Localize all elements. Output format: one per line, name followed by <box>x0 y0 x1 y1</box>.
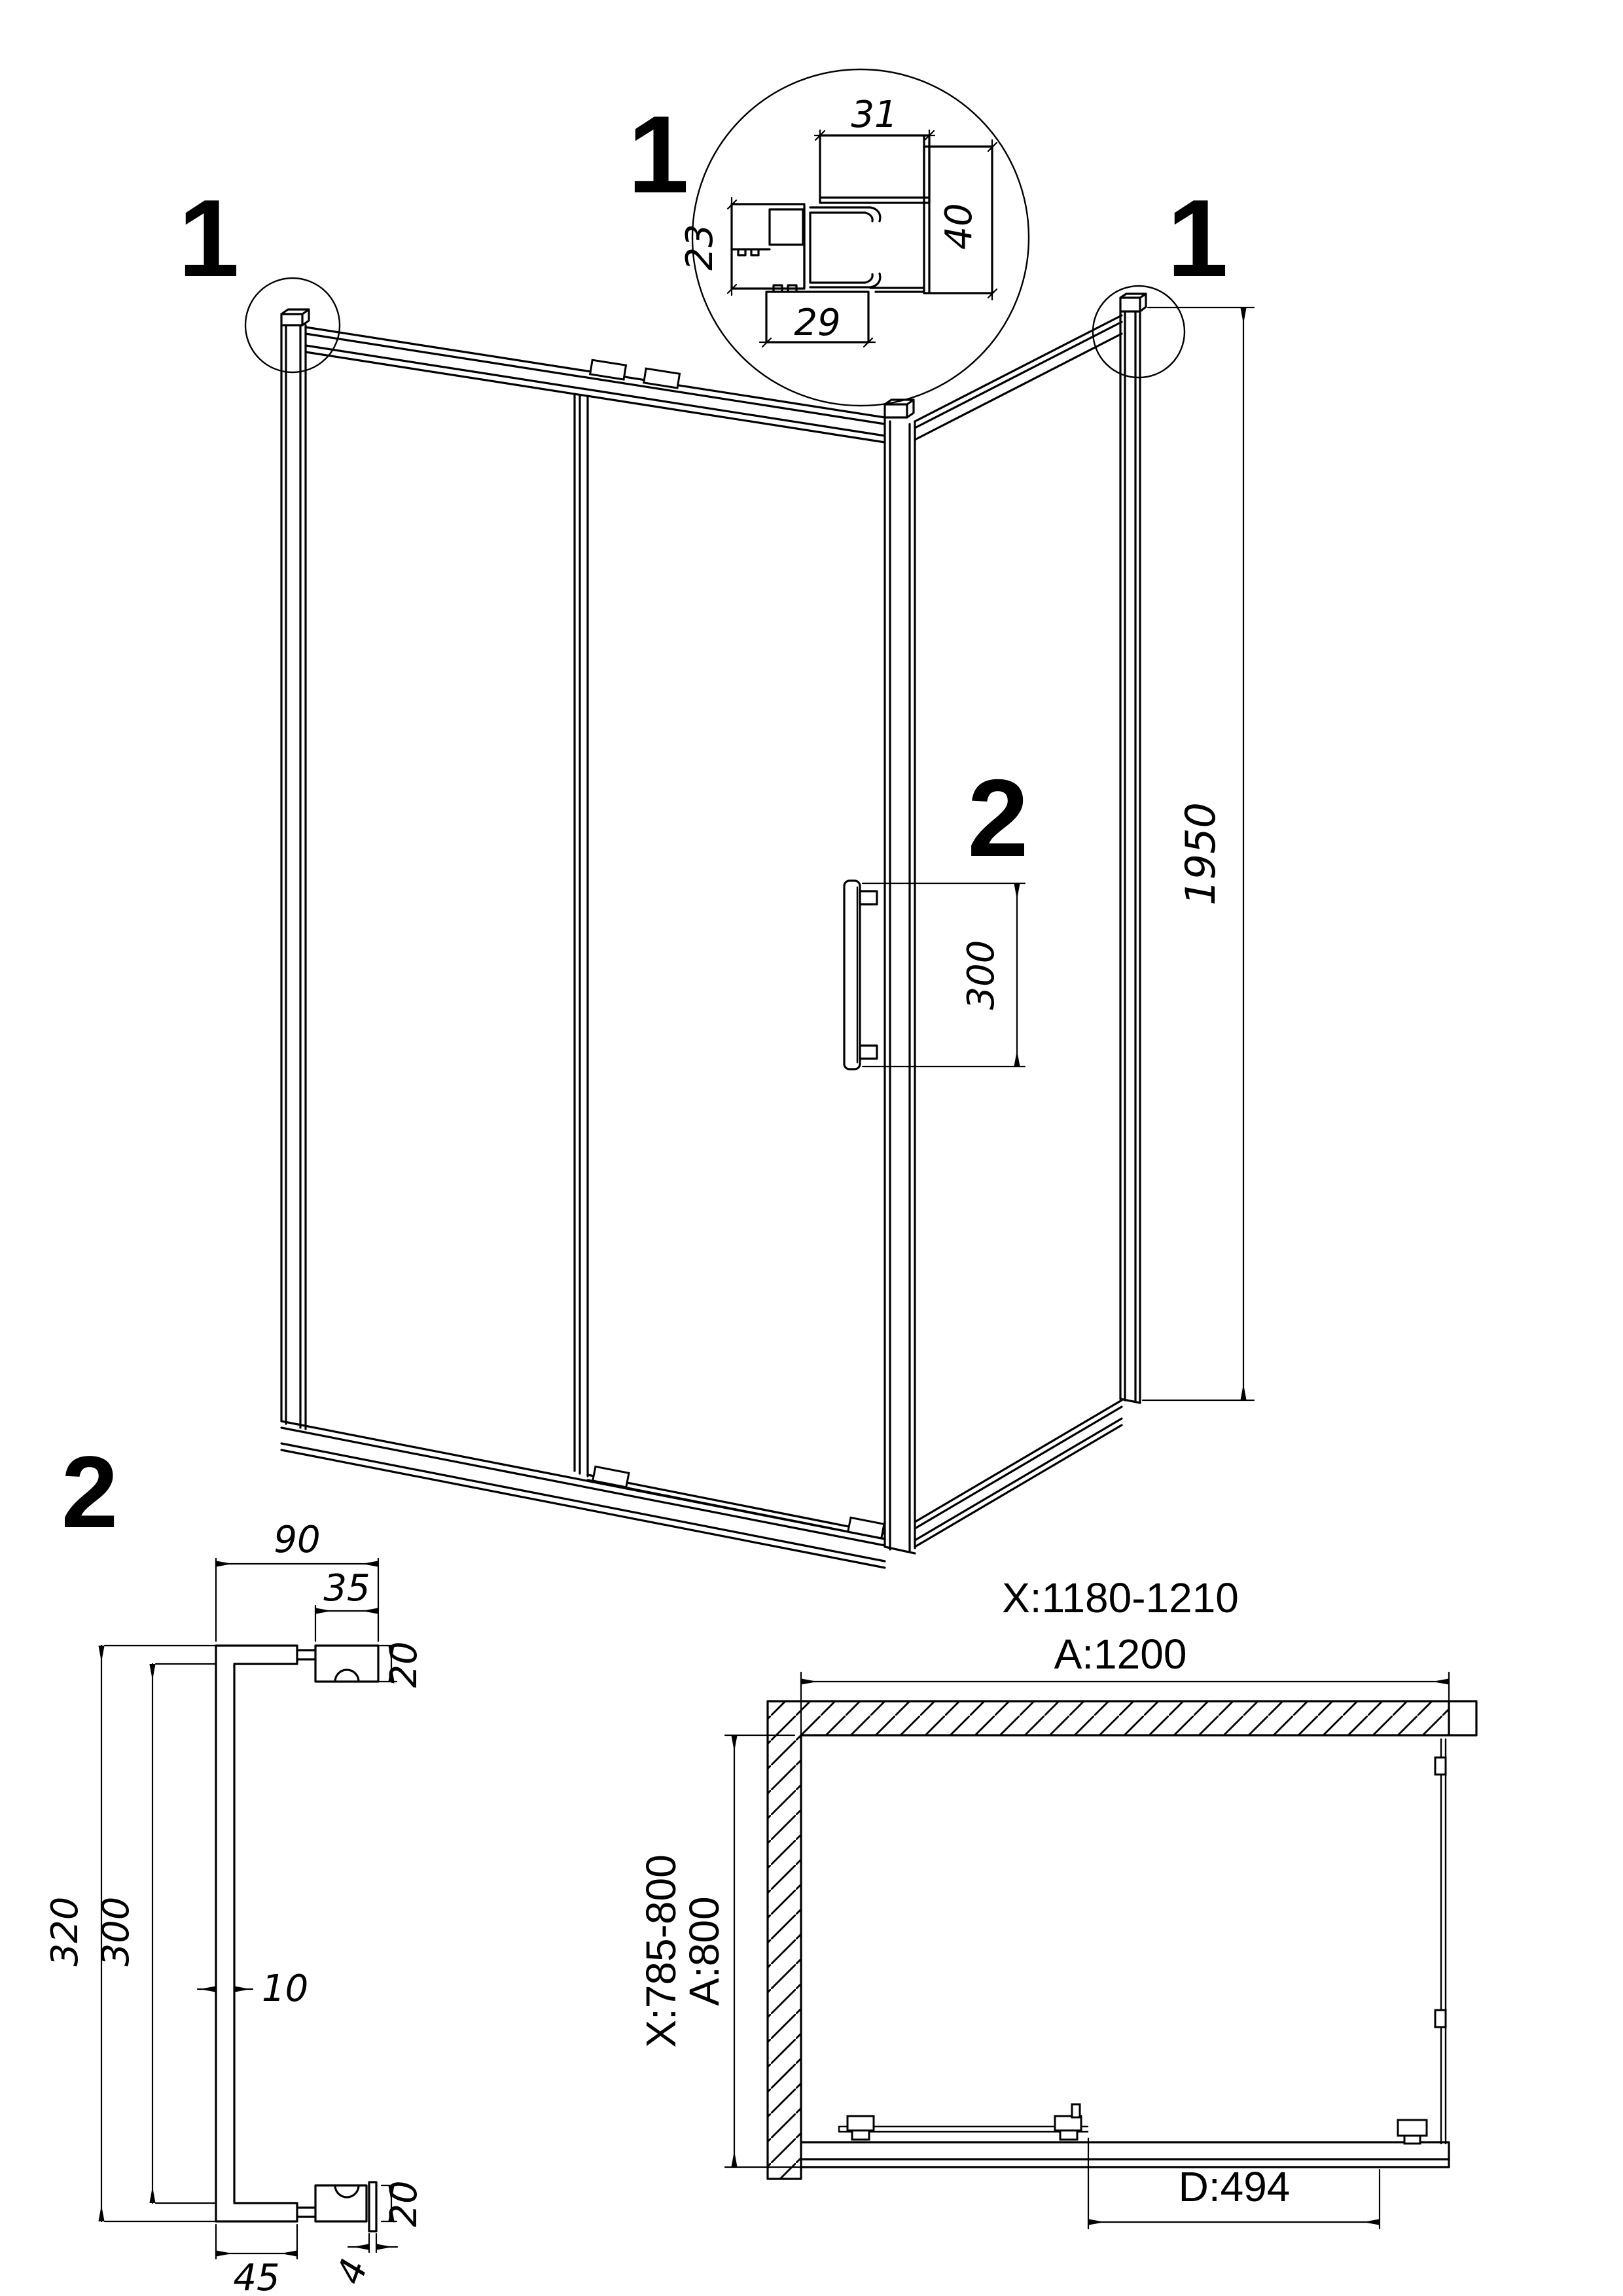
detail1-dim-top: 31 <box>851 94 897 136</box>
left-post <box>281 325 306 1429</box>
plan-dim-width: A:1200 <box>1054 1631 1187 1678</box>
plan-side-bracket-2 <box>1435 2010 1446 2027</box>
side-panel-bottom <box>915 1400 1122 1547</box>
main-dim-height: 1950 <box>1177 802 1224 906</box>
callout-circle-right <box>1093 286 1185 378</box>
side-panel-top <box>915 315 1122 440</box>
detail-1-profile-section: 1 31 40 23 29 <box>628 69 1029 406</box>
handle-bottom-block <box>315 2185 366 2221</box>
door-bottom-edge <box>588 1475 885 1539</box>
top-rail-clip-1 <box>590 360 626 380</box>
d2-dim-bar-thickness: 10 <box>262 1968 308 2010</box>
plan-dim-depth: A:800 <box>681 1896 728 2005</box>
door-handle <box>844 881 877 1069</box>
plan-roller-left <box>847 2116 874 2140</box>
handle-top-block <box>315 1646 378 1682</box>
wall-hatch <box>768 1701 1449 2179</box>
bottom-rail-clip-1 <box>593 1466 629 1487</box>
back-post <box>1120 311 1140 1403</box>
plan-dim-depth-range: X:785-800 <box>637 1854 685 2047</box>
profile-top-rect <box>820 135 929 203</box>
d2-dim-outer-length: 320 <box>44 1897 86 1967</box>
shower-enclosure-technical-drawing: 1 31 40 23 29 1 1 <box>0 0 1623 2296</box>
d2-dim-plate-thickness: 4 <box>329 2253 376 2290</box>
d2-dim-arm-length: 45 <box>233 2257 279 2296</box>
handle-body <box>216 1646 297 2221</box>
detail-1-label: 1 <box>628 93 688 216</box>
main-3d-view: 1 1 <box>178 177 1254 1568</box>
detail1-dim-right: 40 <box>938 203 980 249</box>
detail-2-label: 2 <box>62 1436 118 1549</box>
wall-outline <box>768 1701 1476 2179</box>
plan-view: X:1180-1210 A:1200 X:785-800 A:800 D:494 <box>637 1574 1476 2229</box>
mullion <box>575 394 588 1476</box>
plan-roller-middle <box>1055 2104 1081 2140</box>
left-post-cap <box>281 309 309 325</box>
detail1-dim-bottom: 29 <box>794 302 840 344</box>
plan-dim-door-width: D:494 <box>1179 2163 1291 2210</box>
corner-right-label: 1 <box>1167 177 1228 300</box>
front-bottom-rail <box>281 1421 885 1568</box>
handle-bottom-plate <box>369 2182 376 2231</box>
plan-roller-right <box>1398 2120 1427 2144</box>
d2-dim-block-height-top: 20 <box>383 1641 425 1687</box>
corner-post-cap <box>885 400 914 417</box>
d2-dim-block-height-bottom: 20 <box>383 2180 425 2227</box>
detail-2-handle-section: 2 90 35 20 320 300 10 20 <box>44 1436 425 2296</box>
plan-door-glass <box>839 2127 1088 2132</box>
plan-side-glass <box>1441 1739 1446 2144</box>
d2-dim-block-width: 35 <box>323 1567 370 1610</box>
profile-glass-channel <box>804 207 924 292</box>
d2-dim-overall-width: 90 <box>274 1519 320 1561</box>
top-rail <box>306 327 885 442</box>
top-rail-clip-2 <box>644 368 680 388</box>
corner-post <box>885 417 915 1553</box>
plan-side-bracket-1 <box>1435 1757 1446 1775</box>
detail1-dim-left: 23 <box>679 224 721 270</box>
handle-label: 2 <box>967 756 1028 879</box>
profile-left-rect <box>732 204 804 292</box>
bottom-rail-clip-2 <box>848 1517 884 1538</box>
corner-left-label: 1 <box>178 177 239 300</box>
plan-bottom-track <box>801 2142 1449 2167</box>
plan-dim-width-range: X:1180-1210 <box>1002 1574 1239 1621</box>
handle-stems <box>297 1650 315 2217</box>
main-dim-handle: 300 <box>960 940 1003 1010</box>
back-post-cap <box>1120 294 1146 311</box>
d2-dim-inner-length: 300 <box>95 1897 137 1967</box>
